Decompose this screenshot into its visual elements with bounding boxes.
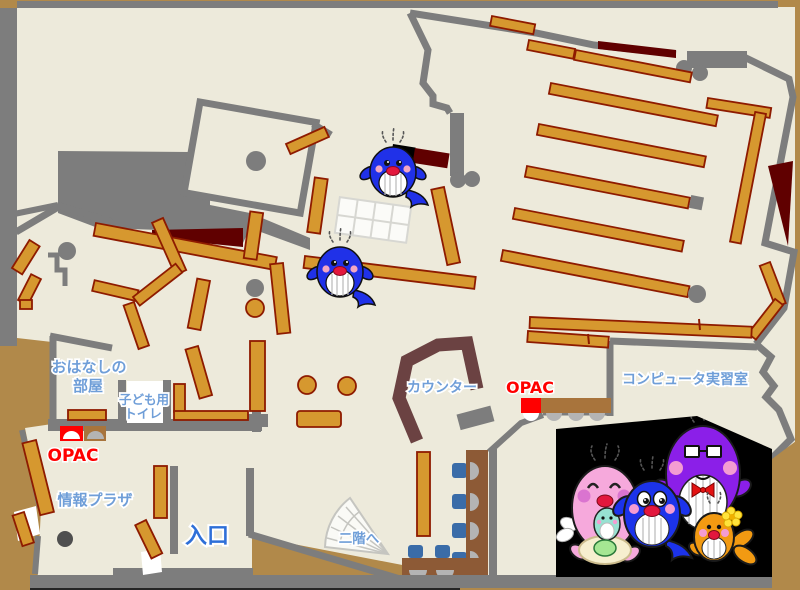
shelf bbox=[20, 300, 32, 309]
circle bbox=[723, 461, 737, 475]
circle bbox=[660, 499, 662, 501]
round-table bbox=[246, 299, 264, 317]
rect bbox=[392, 206, 410, 224]
label-entrance: 入口 bbox=[185, 524, 229, 549]
rect bbox=[372, 221, 390, 239]
opacbox bbox=[521, 398, 541, 413]
ellipse bbox=[644, 506, 660, 517]
shelf bbox=[154, 466, 167, 518]
shelf-end-block bbox=[689, 195, 704, 210]
circle bbox=[722, 512, 730, 520]
label-story-room-2: 部屋 bbox=[73, 377, 103, 395]
circle bbox=[597, 520, 601, 524]
label-story-room: おはなしの bbox=[51, 358, 126, 376]
shelfdiv bbox=[699, 319, 700, 330]
ellipse bbox=[600, 523, 614, 539]
circle bbox=[699, 529, 707, 537]
pillar bbox=[246, 279, 264, 297]
rect bbox=[389, 224, 407, 242]
wall-block bbox=[248, 414, 268, 427]
chair bbox=[452, 523, 467, 538]
top-wall bbox=[17, 1, 778, 8]
low-shelf bbox=[297, 411, 341, 427]
floor-map-svg: おはなしの 部屋 子ども用 トイレ OPAC 情報プラザ 入口 二階へ カウンタ… bbox=[0, 0, 800, 590]
pillar bbox=[692, 65, 708, 81]
label-opac-counter: OPAC bbox=[506, 378, 554, 397]
chair bbox=[452, 463, 467, 478]
wall-thick-bar bbox=[687, 51, 747, 68]
info-plaza-west-wall2 bbox=[35, 536, 38, 574]
chair bbox=[435, 545, 450, 558]
circle bbox=[707, 525, 711, 529]
label-opac-info-plaza: OPAC bbox=[48, 446, 99, 466]
circle bbox=[643, 498, 649, 504]
rect bbox=[707, 446, 721, 457]
rect bbox=[374, 203, 392, 221]
circle bbox=[701, 488, 706, 493]
pillar bbox=[464, 171, 480, 187]
label-kids-toilet-2: トイレ bbox=[124, 406, 162, 421]
ellipse bbox=[709, 531, 720, 540]
pillar bbox=[58, 242, 76, 260]
circle bbox=[629, 504, 639, 514]
green-turtle bbox=[594, 540, 616, 556]
circle bbox=[644, 499, 646, 501]
circle bbox=[659, 498, 665, 504]
chair bbox=[408, 545, 423, 558]
entrance-corridor-wall bbox=[246, 468, 254, 536]
shelfdiv bbox=[588, 334, 589, 344]
shelf bbox=[250, 341, 265, 411]
shelf bbox=[68, 410, 106, 420]
shelf bbox=[174, 411, 248, 420]
label-stairs: 二階へ bbox=[339, 530, 380, 547]
ellipse bbox=[635, 513, 669, 545]
circle bbox=[721, 529, 729, 537]
info-plaza-east-wall bbox=[170, 466, 178, 554]
frame-corner-bottom-right bbox=[772, 438, 800, 590]
rect bbox=[354, 219, 372, 237]
pillar bbox=[246, 151, 266, 171]
shelf bbox=[417, 452, 430, 536]
circle bbox=[578, 490, 591, 503]
opac-terminal-info-plaza bbox=[60, 426, 106, 441]
circle bbox=[613, 520, 617, 524]
rect bbox=[338, 198, 356, 216]
rect bbox=[685, 446, 699, 457]
label-counter: カウンター bbox=[407, 380, 477, 396]
label-info-plaza: 情報プラザ bbox=[57, 491, 132, 509]
desk2 bbox=[541, 398, 611, 413]
rect bbox=[356, 201, 374, 219]
label-kids-toilet: 子ども用 bbox=[119, 392, 169, 407]
round-table bbox=[298, 376, 316, 394]
circle bbox=[609, 516, 612, 519]
ellipse bbox=[597, 495, 613, 507]
pillar bbox=[688, 285, 706, 303]
circle bbox=[665, 504, 675, 514]
rect bbox=[336, 216, 354, 234]
circle bbox=[717, 525, 721, 529]
shelf bbox=[174, 384, 185, 412]
left-wall bbox=[0, 8, 17, 346]
chair bbox=[452, 494, 467, 509]
library-floor-map: おはなしの 部屋 子ども用 トイレ OPAC 情報プラザ 入口 二階へ カウンタ… bbox=[0, 0, 800, 590]
circle bbox=[669, 461, 683, 475]
circle bbox=[601, 516, 604, 519]
pillar bbox=[450, 172, 466, 188]
pillar bbox=[57, 531, 73, 547]
label-computer-room: コンピュータ実習室 bbox=[622, 371, 748, 388]
carrel-east-wall bbox=[489, 449, 497, 578]
circle bbox=[729, 514, 735, 520]
round-table bbox=[338, 377, 356, 395]
